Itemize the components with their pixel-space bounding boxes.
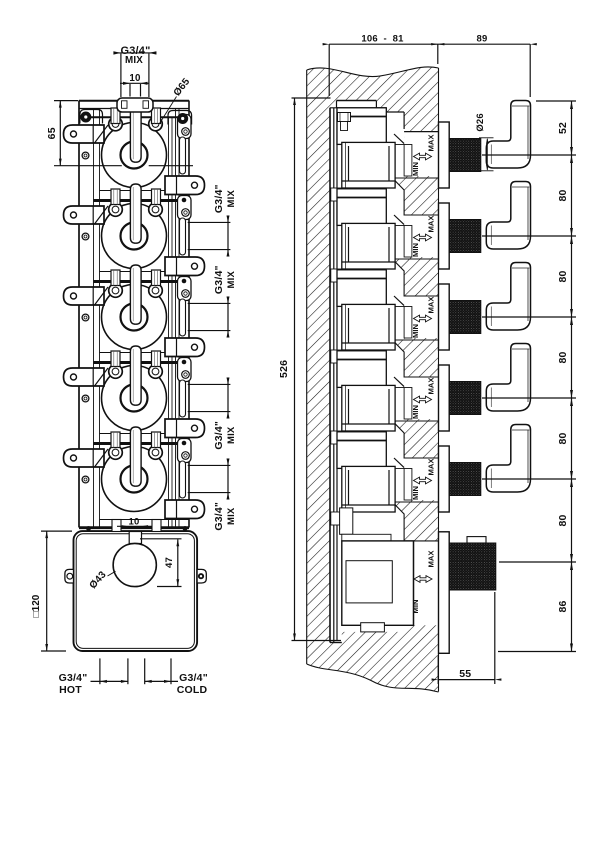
svg-text:89: 89: [477, 34, 488, 45]
svg-text:G3/4": G3/4": [213, 265, 225, 294]
svg-text:MAX: MAX: [426, 551, 435, 568]
svg-text:MIN: MIN: [411, 162, 420, 176]
svg-text:MAX: MAX: [426, 459, 435, 476]
svg-text:MIN: MIN: [411, 486, 420, 500]
svg-text:526: 526: [278, 360, 290, 378]
svg-text:G3/4": G3/4": [59, 672, 88, 684]
svg-text:MAX: MAX: [426, 297, 435, 314]
svg-text:MIN: MIN: [411, 405, 420, 419]
svg-text:G3/4": G3/4": [213, 421, 225, 450]
svg-text:86: 86: [557, 600, 569, 612]
svg-text:MAX: MAX: [426, 135, 435, 152]
svg-text:80: 80: [557, 270, 569, 282]
svg-text:Ø26: Ø26: [475, 113, 486, 132]
svg-text:52: 52: [557, 122, 569, 134]
svg-text:10: 10: [129, 73, 141, 84]
svg-text:80: 80: [557, 432, 569, 444]
svg-text:MIX: MIX: [226, 507, 237, 525]
svg-text:MIN: MIN: [411, 324, 420, 338]
svg-text:106 - 81: 106 - 81: [361, 34, 404, 45]
svg-text:G3/4": G3/4": [179, 672, 208, 684]
svg-text:MIX: MIX: [226, 189, 237, 207]
svg-text:55: 55: [459, 668, 471, 680]
svg-text:65: 65: [46, 127, 58, 139]
svg-text:47: 47: [164, 557, 175, 568]
svg-text:MIX: MIX: [226, 270, 237, 288]
svg-text:MIX: MIX: [226, 426, 237, 444]
svg-text:HOT: HOT: [59, 684, 82, 696]
svg-text:G3/4": G3/4": [213, 502, 225, 531]
svg-text:MIN: MIN: [411, 600, 420, 614]
svg-text:□120: □120: [31, 594, 42, 617]
svg-text:MAX: MAX: [426, 216, 435, 233]
svg-text:COLD: COLD: [177, 684, 208, 696]
svg-text:MIN: MIN: [411, 243, 420, 257]
svg-text:MIX: MIX: [125, 55, 143, 66]
svg-text:MAX: MAX: [426, 378, 435, 395]
svg-text:80: 80: [557, 189, 569, 201]
svg-text:80: 80: [557, 351, 569, 363]
svg-text:G3/4": G3/4": [213, 184, 225, 213]
svg-text:80: 80: [557, 514, 569, 526]
